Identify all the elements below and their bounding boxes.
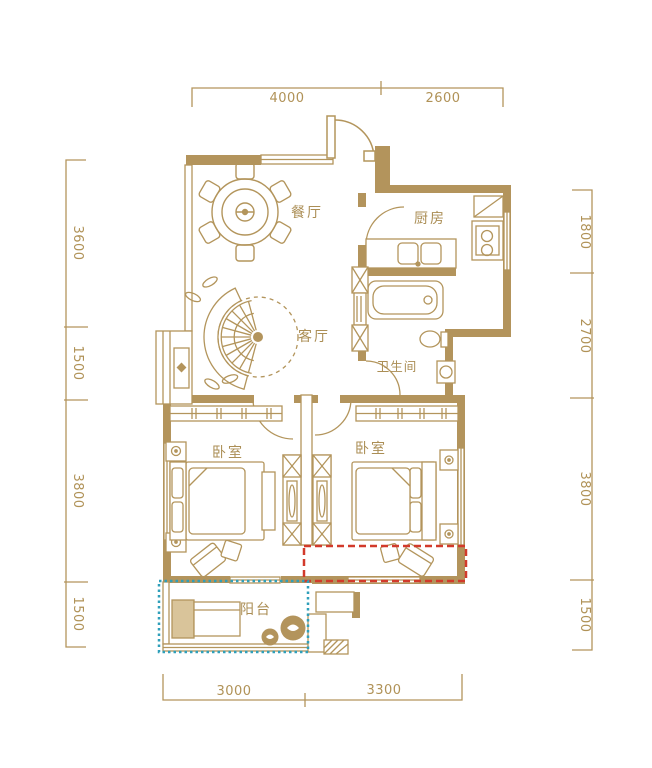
toilet (420, 331, 440, 347)
bathroom (366, 281, 455, 395)
kitchen (366, 196, 503, 268)
ac-platform (308, 592, 354, 654)
dim-bottom-3300: 3300 (366, 683, 401, 698)
dim-left-3600: 3600 (70, 225, 85, 260)
chair-left (189, 540, 242, 578)
wardrobe-left (283, 455, 301, 545)
bedroom-right (352, 406, 458, 577)
living-room (156, 275, 298, 404)
dimension-chain-right (570, 190, 594, 650)
dining-room-label: 餐厅 (291, 205, 323, 221)
bed-left (170, 462, 275, 540)
dim-right-2700: 2700 (577, 318, 592, 353)
dim-right-1500: 1500 (577, 597, 592, 632)
balcony (163, 582, 311, 651)
dim-left-3800: 3800 (70, 473, 85, 508)
living-room-label: 客厅 (298, 328, 330, 345)
dim-bottom-3000: 3000 (216, 684, 251, 699)
balcony-label: 阳台 (240, 602, 272, 618)
dim-right-1800: 1800 (577, 214, 592, 249)
lounge-chair (172, 600, 240, 638)
curved-sofa (204, 288, 248, 389)
floorplan-drawing: 4000 2600 3000 3300 3600 1500 3800 1500 … (0, 0, 652, 768)
floorplan-canvas: 4000 2600 3000 3300 3600 1500 3800 1500 … (0, 0, 652, 768)
partition-wall (301, 395, 312, 545)
bedroom-left-label: 卧室 (212, 444, 244, 461)
dim-right-3800: 3800 (577, 471, 592, 506)
dim-left-1500b: 1500 (70, 596, 85, 631)
dining-room (198, 163, 292, 261)
sink (398, 243, 418, 264)
bathroom-label: 卫生间 (377, 359, 418, 374)
entry-door (327, 116, 375, 161)
bed-right (352, 462, 436, 540)
bedroom-right-door-arc (315, 399, 351, 435)
leaf-decor (201, 275, 218, 289)
dimension-chain-bottom (163, 674, 462, 707)
bedroom-right-label: 卧室 (355, 440, 387, 457)
dim-left-1500a: 1500 (70, 345, 85, 380)
kitchen-label: 厨房 (414, 211, 446, 227)
bedroom-left (166, 406, 282, 578)
dim-top-2600: 2600 (425, 91, 460, 106)
wardrobe-right (313, 455, 331, 545)
dim-top-4000: 4000 (269, 91, 304, 106)
chair-right (380, 543, 434, 578)
structural-columns (352, 267, 368, 351)
